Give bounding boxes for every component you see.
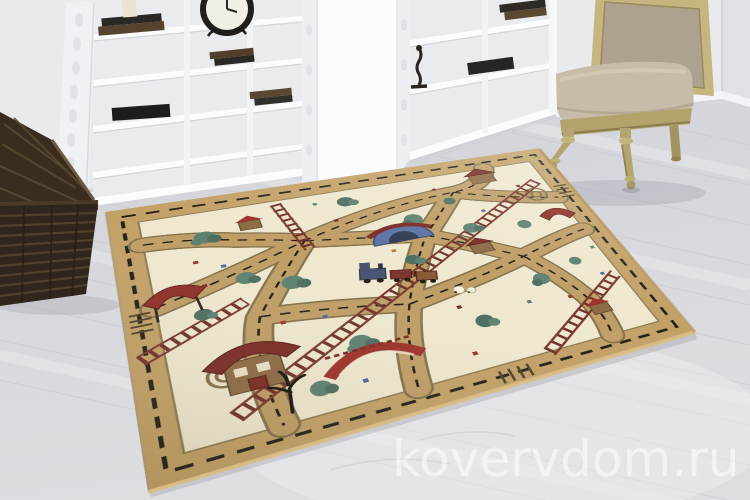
shelf-divider (247, 0, 253, 176)
room-photo: kovervdom.ru (0, 0, 750, 500)
shelf-side-panel (549, 0, 557, 113)
shelf-divider (184, 0, 190, 185)
wall-right-corner (722, 0, 750, 103)
wall-panel (302, 0, 410, 182)
watermark-text: kovervdom.ru (392, 430, 739, 488)
candle (122, 0, 137, 18)
